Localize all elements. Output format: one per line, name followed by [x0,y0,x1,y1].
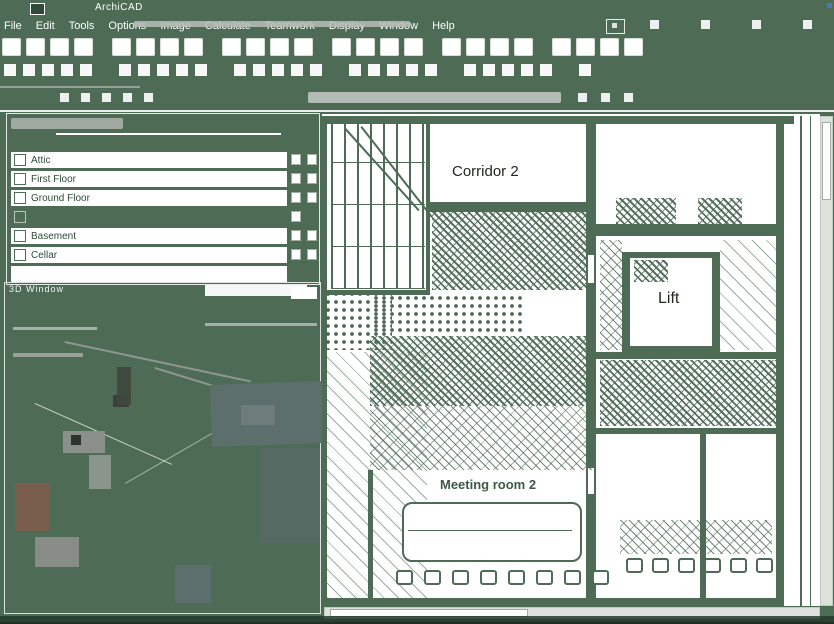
chair [756,558,773,573]
chair [508,570,525,585]
toolbar-button[interactable] [356,38,375,56]
3d-edge-line [65,341,251,382]
toolbar-small-button[interactable] [368,64,380,76]
toolbar-small-button[interactable] [502,64,514,76]
chair [536,570,553,585]
chair [652,558,669,573]
chair-row [626,558,773,573]
row-button[interactable] [291,154,301,165]
app-window: ArchiCAD File Edit Tools Options Image C… [0,0,834,624]
toolbar-small-button[interactable] [425,64,437,76]
row-icon [14,154,26,166]
floor-hatch [600,240,622,350]
row-icon [14,211,26,223]
list-item-selected[interactable] [11,209,287,225]
list-item[interactable]: Basement [11,228,287,244]
toolbar-button[interactable] [222,38,241,56]
zone-stamp [634,260,668,282]
row-controls [291,230,321,242]
small-toolbar-button[interactable] [752,20,761,29]
3d-window-title: 3D Window [9,284,64,294]
small-toolbar-button[interactable] [803,20,812,29]
toolbar-small-button[interactable] [4,64,16,76]
row-button[interactable] [307,192,317,203]
list-item[interactable]: First Floor [11,171,287,187]
toolbar-small-button[interactable] [406,64,418,76]
toolbar-small-button[interactable] [80,64,92,76]
toolbar-small-button[interactable] [42,64,54,76]
toolbar-button[interactable] [332,38,351,56]
toolbar-button[interactable] [442,38,461,56]
toolbar-button[interactable] [246,38,265,56]
toolbar-button[interactable] [112,38,131,56]
grid-line [800,116,802,608]
list-item-empty[interactable] [11,266,287,282]
row-button[interactable] [307,249,317,260]
palette-header-underline [56,133,281,135]
toolbar-button[interactable] [160,38,179,56]
room-label-lift: Lift [658,290,679,308]
row-button[interactable] [291,192,301,203]
3d-surface [15,483,49,531]
toolbar-small-button[interactable] [349,64,361,76]
3d-surface [175,565,211,603]
infobox-left-buttons [60,93,153,102]
chair [730,558,747,573]
toolbar-small-button[interactable] [483,64,495,76]
infobox-button[interactable] [60,93,69,102]
menu-edit[interactable]: Edit [36,20,55,32]
toolbar-button[interactable] [514,38,533,56]
3d-surface [35,537,79,567]
row-icon [14,230,26,242]
window-control-icon[interactable] [827,3,832,8]
toolbar-divider [0,86,140,88]
list-item[interactable]: Ground Floor [11,190,287,206]
chair [480,570,497,585]
infobox-button[interactable] [102,93,111,102]
toolbar-button[interactable] [576,38,595,56]
toolbar-small-button[interactable] [157,64,169,76]
toolbar-small-button[interactable] [176,64,188,76]
row-button[interactable] [291,249,301,260]
toolbar-button[interactable] [600,38,619,56]
toolbar-button[interactable] [184,38,203,56]
room-label-meeting: Meeting room 2 [440,477,536,492]
chair [678,558,695,573]
zone-stamp [616,198,676,224]
toolbar-small-button[interactable] [310,64,322,76]
row-controls [291,249,321,261]
chair [626,558,643,573]
secondary-toolbar [4,63,830,77]
row-button[interactable] [291,230,301,241]
infobox-button[interactable] [601,93,610,102]
toolbar-small-button[interactable] [540,64,552,76]
toolbar-small-button[interactable] [23,64,35,76]
main-toolbar [2,37,832,57]
menu-file[interactable]: File [4,20,22,32]
chair-row [396,570,609,585]
menu-help[interactable]: Help [432,20,455,32]
toolbar-button[interactable] [270,38,289,56]
row-controls [291,154,321,166]
infobox-button[interactable] [81,93,90,102]
3d-viewport-window[interactable]: 3D Window [4,282,321,614]
menu-tools[interactable]: Tools [69,20,95,32]
3d-edge-line [205,323,317,326]
3d-surface [260,448,320,543]
row-button[interactable] [307,154,317,165]
3d-surface [63,431,105,453]
small-toolbar-button[interactable] [701,20,710,29]
toolbar-button[interactable] [74,38,93,56]
toolbar-button[interactable] [380,38,399,56]
row-button[interactable] [291,211,301,222]
row-controls [291,192,321,204]
menu-gray-bar [133,21,411,27]
toolbar-bottom-divider [0,110,834,112]
toolbar-small-button[interactable] [234,64,246,76]
toolbar-button[interactable] [404,38,423,56]
wall [430,202,590,212]
toolbar-button[interactable] [2,38,21,56]
window-title: ArchiCAD [95,2,143,13]
grid-line [810,116,811,608]
toolbar-small-button[interactable] [521,64,533,76]
toolbar-button[interactable] [294,38,313,56]
door-opening [588,468,594,494]
row-button[interactable] [291,173,301,184]
conference-table [402,502,582,562]
toolbar-small-button[interactable] [195,64,207,76]
zone-stamp [698,198,742,224]
furniture-hatch [432,212,588,290]
app-icon [30,3,45,15]
lift-wall [712,252,720,352]
wall [596,224,780,236]
title-bar: ArchiCAD [0,0,834,16]
toolbar-small-button[interactable] [61,64,73,76]
toolbar-small-button[interactable] [138,64,150,76]
small-toolbar-button[interactable] [650,20,659,29]
furniture-hatch [600,360,776,426]
3d-surface [241,405,275,425]
toolbar-button[interactable] [26,38,45,56]
3d-surface [117,367,131,405]
toolbar-button[interactable] [552,38,571,56]
3d-highlight [291,287,317,299]
door-opening [588,255,594,283]
list-item[interactable]: Attic [11,152,287,168]
wall [596,428,780,434]
row-icon [14,173,26,185]
row-button[interactable] [307,173,317,184]
vertical-scrollbar-thumb[interactable] [822,122,831,200]
infobox-button[interactable] [578,93,587,102]
chair [564,570,581,585]
furniture-hatch [620,520,772,554]
room-label-corridor: Corridor 2 [452,163,519,180]
infobox-button[interactable] [624,93,633,102]
infobox-field[interactable] [308,92,561,103]
row-controls [291,173,321,185]
toolbar-button[interactable] [466,38,485,56]
toolbar-small-button[interactable] [291,64,303,76]
3d-surface [89,455,111,489]
palette-title-area [11,118,123,129]
toolbar-small-button[interactable] [387,64,399,76]
titlebar-right-buttons [650,20,812,29]
toolbar-small-button[interactable] [272,64,284,76]
toolbar-small-button[interactable] [253,64,265,76]
row-icon [14,249,26,261]
workstation-grid [374,296,522,336]
wall [700,430,706,602]
infobox-button[interactable] [144,93,153,102]
chair [592,570,609,585]
chair [704,558,721,573]
row-controls [291,211,321,223]
wall [776,116,784,608]
lift-wall [622,252,630,352]
lift-wall [622,252,720,258]
row-icon [14,192,26,204]
chair [396,570,413,585]
list-palette: Attic First Floor Ground Floor Base [6,113,320,285]
3d-edge-line [13,327,97,330]
infobox-right-buttons [578,93,633,102]
infobox-button[interactable] [123,93,132,102]
toolbar-button[interactable] [136,38,155,56]
chair [424,570,441,585]
toolbar-small-button[interactable] [119,64,131,76]
toolbar-small-button[interactable] [579,64,591,76]
toolbar-button[interactable] [490,38,509,56]
wall [596,352,780,359]
toolbar-outline-button[interactable] [606,19,625,34]
toolbar-small-button[interactable] [464,64,476,76]
list-item[interactable]: Cellar [11,247,287,263]
toolbar-button[interactable] [50,38,69,56]
row-button[interactable] [307,230,317,241]
chair [452,570,469,585]
3d-surface [71,435,81,445]
3d-edge-line [13,353,83,357]
toolbar-button[interactable] [624,38,643,56]
floor-hatch [720,240,776,350]
